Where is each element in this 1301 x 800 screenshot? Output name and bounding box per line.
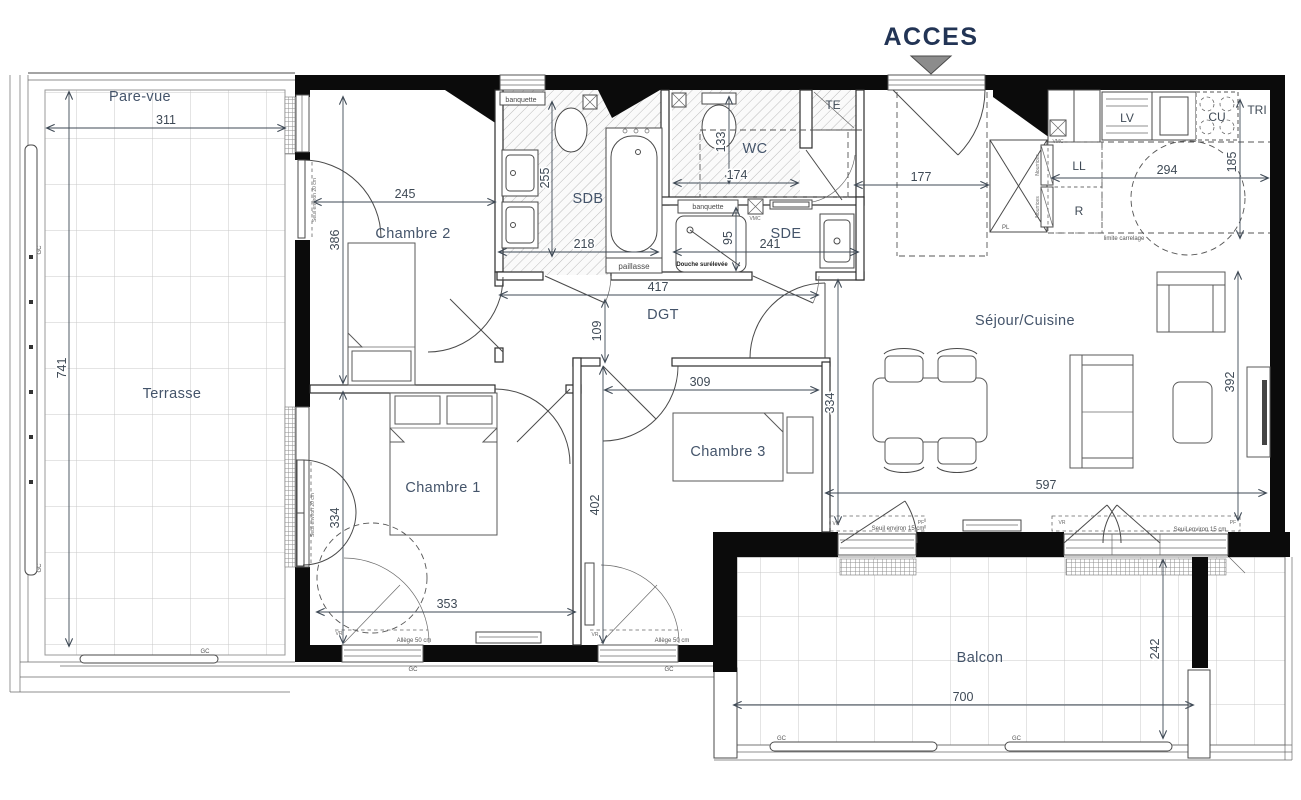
gc-label: GC [1012,736,1022,742]
seuil15-label: Seuil environ 15 cm [872,526,925,532]
allege-label: Allège 50 cm [397,638,432,644]
dim-terrasse-height: 741 [55,358,69,379]
dim-sejour-height: 334 [823,393,837,414]
dim-balcon-width: 700 [953,690,974,704]
entry-door-swing [958,90,985,155]
vmc-label: VMC [1052,139,1064,145]
room-label-chambre3: Chambre 3 [690,444,765,460]
room-label-balcon: Balcon [957,650,1004,666]
dim-sdb-width: 218 [574,237,595,251]
dim-chambre3-width: 309 [690,375,711,389]
balcon-railing [770,742,937,751]
entry-door-leaf [893,90,958,155]
balcony-door-sill [840,559,916,575]
room-label-dgt: DGT [647,307,679,323]
radiator [585,563,594,625]
gc-label: GC [201,649,211,655]
gc-label: GC [409,667,419,673]
sdb-toilet [555,108,587,152]
gc-label: GC [777,736,787,742]
floor-plan-svg: GC GC GC Pare-vue Terrasse GC GC Balcon [0,0,1301,800]
room-label-pare-vue: Pare-vue [109,89,171,105]
ll-label: LL [1072,159,1086,173]
sejour-door-swing [750,283,825,358]
dim-chambre2-height: 386 [328,230,342,251]
sde-door-leaf [753,276,813,303]
room-label-wc: WC [743,141,768,157]
dim-balcon-depth: 242 [1148,639,1162,660]
entry-opening [888,75,985,90]
vr-label: VR [833,521,840,527]
banquette-label: banquette [692,204,723,211]
cu-label: CU [1208,110,1225,124]
seuil15-label: Seuil environ 15 cm [1174,527,1227,533]
tri-label: TRI [1247,103,1266,117]
dim-dgt-height: 109 [590,321,604,342]
coffee-table [1173,382,1212,443]
terrasse-railing-bottom [80,655,218,663]
dim-sejour-width: 597 [1036,478,1057,492]
pl-label: PL [1002,225,1010,231]
r-label: R [1075,204,1084,218]
terrasse-floor [45,90,285,655]
wc-floor [672,90,800,202]
room-label-sejour: Séjour/Cuisine [975,313,1075,329]
limite-carrelage-label: limite carrelage [1104,236,1145,242]
dim-dgt-width: 417 [648,280,669,294]
dim-entree-width: 177 [911,170,932,184]
acces-header: ACCES [883,23,978,74]
room-label-chambre2: Chambre 2 [375,226,450,242]
banquette-label: banquette [505,97,536,104]
dim-chambre2-width: 245 [395,187,416,201]
wc-cistern [702,93,736,104]
gc-label: GC [37,563,43,573]
room-label-sde: SDE [770,226,801,242]
lv-label: LV [1120,111,1134,125]
pf-label: PF [1230,520,1236,526]
vr-label: VR [336,631,343,637]
dim-pare-vue-width: 311 [156,113,176,127]
acces-title: ACCES [883,23,978,51]
acces-arrow-icon [911,56,951,74]
dim-sdb-height: 255 [538,168,552,189]
window-sill [285,97,295,154]
te-label: TE [825,98,840,112]
dim-chambre3-depth: 402 [588,495,602,516]
vr-label: VR [592,632,599,638]
sdb-door-leaf [545,276,605,303]
dim-wc-height: 133 [714,132,728,153]
dim-cuisine-width: 294 [1157,163,1178,177]
room-label-terrasse: Terrasse [143,386,202,402]
wc-door-leaf [806,150,842,200]
paillasse-label: paillasse [618,262,650,271]
dim-cuisine-depth: 185 [1225,152,1239,173]
nourrices-label: Nourrices [1035,154,1041,176]
nourrices-label: Nourrices [1035,196,1041,218]
seuil20-label: Seuil environ 20 cm [310,493,316,537]
vmc-label: VMC [749,216,761,222]
dim-sde-height: 95 [721,231,735,245]
turning-circle [317,523,427,633]
gc-label: GC [665,667,675,673]
room-label-chambre1: Chambre 1 [405,480,480,496]
balcon-railing [1005,742,1172,751]
window-sill [285,407,295,567]
bedside-table [787,417,813,473]
balcon-pillar-right [1188,670,1210,758]
seuil20-label: Seuil environ 20 cm [312,178,318,222]
tv [1262,380,1267,445]
dining-table [873,378,987,442]
vr-label: VR [1059,520,1066,526]
dim-sejour-depth: 392 [1223,372,1237,393]
dim-chambre1-height: 334 [328,508,342,529]
floor-plan-page: GC GC GC Pare-vue Terrasse GC GC Balcon [0,0,1301,800]
allege-label: Allège 50 cm [655,638,690,644]
balcon-pillar-left [714,668,737,758]
gc-label: GC [37,245,43,255]
douche-surelevee-label: Douche surélevée [676,262,728,268]
radiator [963,520,1021,531]
dim-chambre1-width: 353 [437,597,458,611]
dim-wc-width: 174 [727,168,748,182]
terrasse-railing-left [25,145,37,575]
room-label-sdb: SDB [572,191,603,207]
radiator [476,632,541,643]
